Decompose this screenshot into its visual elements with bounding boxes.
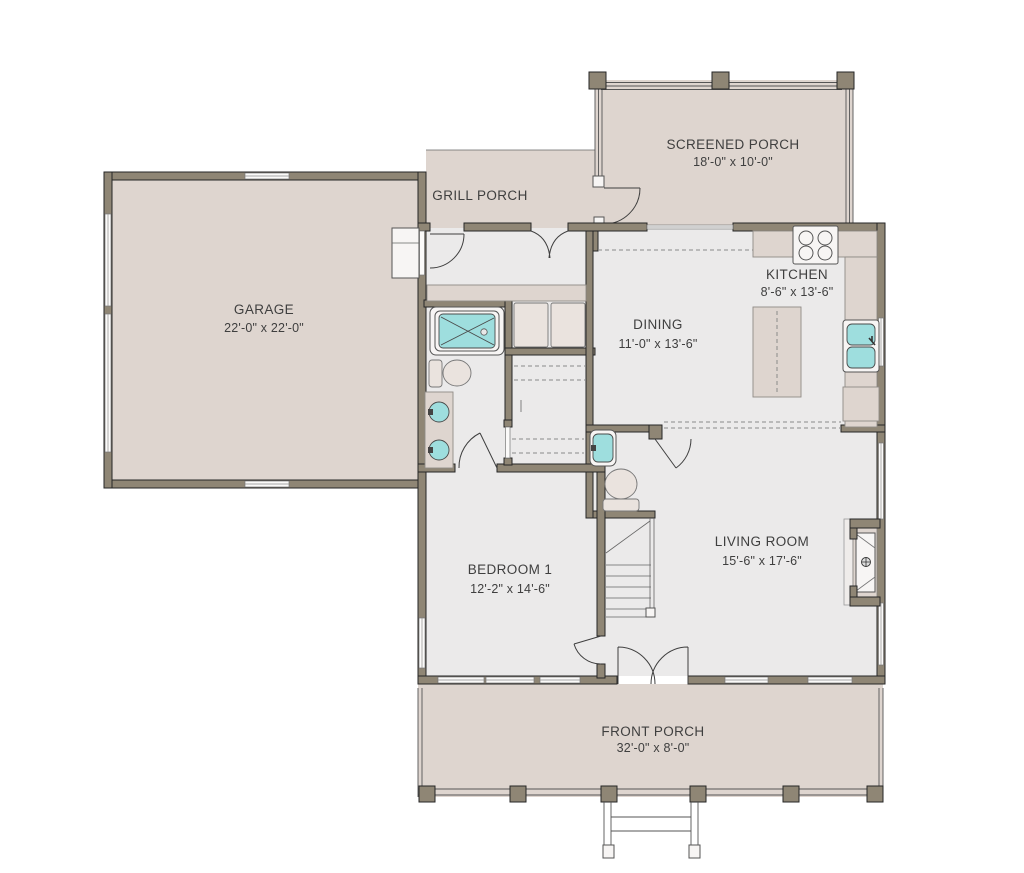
vanity-double-sink: [425, 392, 453, 468]
kitchen-dims: 8'-6" x 13'-6": [761, 285, 834, 299]
garage-name: GARAGE: [234, 302, 294, 317]
dryer-icon: [551, 303, 585, 347]
dining-dims: 11'-0" x 13'-6": [619, 337, 698, 351]
bedroom-1-dims: 12'-2" x 14'-6": [470, 582, 550, 596]
porch-post: [510, 786, 526, 802]
kitchen-sink-icon: [843, 320, 879, 372]
refrigerator: [843, 387, 879, 421]
screen-post: [593, 176, 604, 187]
screened-porch-floor: [595, 80, 853, 228]
kitchen-name: KITCHEN: [766, 267, 828, 282]
front-porch-dims: 32'-0" x 8'-0": [617, 741, 690, 755]
garage-stoop: [392, 228, 419, 278]
bedroom-1-name: BEDROOM 1: [468, 562, 553, 577]
porch-post: [837, 72, 854, 89]
shower-icon: [430, 307, 504, 355]
front-porch-name: FRONT PORCH: [601, 724, 704, 739]
porch-post: [601, 786, 617, 802]
kitchen-island: [753, 307, 801, 397]
porch-post: [690, 786, 706, 802]
dining-name: DINING: [633, 317, 683, 332]
fireplace-icon: [844, 519, 880, 606]
powder-toilet-icon: [603, 469, 639, 511]
living-room-name: LIVING ROOM: [715, 534, 809, 549]
porch-post: [419, 786, 435, 802]
grill-porch-name: GRILL PORCH: [432, 188, 527, 203]
screened-porch-name: SCREENED PORCH: [666, 137, 799, 152]
washer-icon: [514, 303, 548, 347]
stair-newel: [646, 608, 655, 617]
toilet-icon: [429, 360, 471, 387]
porch-post: [712, 72, 729, 89]
porch-post: [783, 786, 799, 802]
mudroom-bench: [427, 285, 586, 301]
powder-sink-icon: [590, 430, 616, 466]
living-room-dims: 15'-6" x 17'-6": [722, 554, 802, 568]
screened-porch-dims: 18'-0" x 10'-0": [693, 155, 773, 169]
floor-plan: GARAGE 22'-0" x 22'-0" GRILL PORCH SCREE…: [0, 0, 1024, 873]
porch-post: [867, 786, 883, 802]
porch-post: [589, 72, 606, 89]
stove-icon: [793, 226, 838, 264]
porch-steps: [603, 802, 700, 858]
garage-dims: 22'-0" x 22'-0": [224, 321, 304, 335]
label-grill-porch: GRILL PORCH: [432, 188, 527, 203]
